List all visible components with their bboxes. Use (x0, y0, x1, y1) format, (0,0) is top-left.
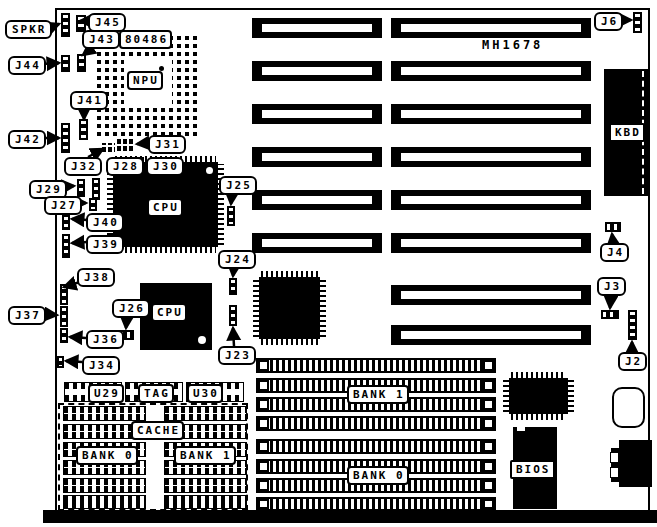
connector-notch (610, 467, 619, 478)
jumper-j2 (628, 310, 637, 340)
isa-slot-segment (391, 61, 591, 81)
callout-j30: J30 (146, 157, 184, 176)
cache-chip (63, 495, 146, 509)
cache-label: CACHE (131, 421, 184, 440)
isa-slot-segment (252, 147, 382, 167)
jumper-j37 (60, 306, 68, 327)
callout-j42: J42 (8, 130, 46, 149)
board-model-text: MH1678 (482, 38, 543, 52)
cache-bank1-label: BANK 1 (174, 446, 236, 465)
bios-label: BIOS (510, 460, 555, 479)
u29-label: U29 (88, 384, 124, 403)
callout-j27: J27 (44, 196, 82, 215)
jumper-j36 (60, 328, 68, 343)
jumper-j4 (605, 222, 621, 232)
callout-j44: J44 (8, 56, 46, 75)
isa-slot-segment (391, 325, 591, 345)
simm-socket (256, 497, 496, 511)
callout-j6: J6 (594, 12, 623, 31)
callout-j25: J25 (219, 176, 257, 195)
npu-label: NPU (127, 71, 163, 90)
chipset-qfp (259, 277, 320, 339)
memory-bank1-label: BANK 1 (347, 385, 409, 404)
memory-bank0-label: BANK 0 (347, 466, 409, 485)
jumper-j43 (77, 54, 86, 72)
cache-chip (164, 478, 247, 493)
pin1-dot (198, 336, 206, 344)
battery-outline (612, 387, 645, 428)
isa-slot-segment (252, 190, 382, 210)
isa-slot-segment (391, 18, 591, 38)
cache-chip (63, 406, 146, 421)
callout-j32: J32 (64, 157, 102, 176)
isa-slot-segment (391, 190, 591, 210)
power-connector (619, 440, 652, 487)
callout-j38: J38 (77, 268, 115, 287)
jumper-j34 (57, 356, 64, 368)
callout-j40: J40 (86, 213, 124, 232)
cpu-top-label: CPU (147, 198, 183, 217)
callout-j34: J34 (82, 356, 120, 375)
callout-j41: J41 (70, 91, 108, 110)
callout-j4: J4 (600, 243, 629, 262)
simm-socket (256, 358, 496, 373)
board-bottom-edge (43, 510, 657, 523)
cache-bank0-label: BANK 0 (76, 446, 138, 465)
callout-j39: J39 (86, 235, 124, 254)
callout-j2: J2 (618, 352, 647, 371)
isa-slot-segment (391, 147, 591, 167)
jumper-j42 (61, 123, 70, 153)
jumper-j38 (60, 284, 68, 305)
callout-j24: J24 (218, 250, 256, 269)
simm-socket (256, 416, 496, 431)
isa-slot-segment (252, 104, 382, 124)
cache-chip (164, 495, 247, 509)
isa-slot-segment (252, 18, 382, 38)
jumper-j3 (601, 310, 619, 319)
jumper-j29 (77, 179, 85, 197)
pin1-dot (206, 167, 213, 174)
connector-notch (610, 452, 619, 463)
callout-j23: J23 (218, 346, 256, 365)
cache-chip (63, 478, 146, 493)
cache-chip (164, 406, 247, 421)
isa-slot-segment (391, 104, 591, 124)
callout-j37: J37 (8, 306, 46, 325)
jumper-j44 (61, 55, 70, 72)
jumper-j32 (102, 143, 115, 152)
jumper-j23 (229, 305, 237, 326)
jumper-j25 (227, 206, 235, 226)
jumper-j24 (229, 278, 237, 295)
jumper-j41 (79, 119, 88, 140)
jumper-j28 (92, 178, 100, 200)
motherboard-diagram: MH1678 80486 NPU CPU CPU KBD BIOS BANK 1 (0, 0, 657, 527)
callout-j31: J31 (148, 135, 186, 154)
callout-j26: J26 (112, 299, 150, 318)
tag-label: TAG (138, 384, 174, 403)
u30-label: U30 (187, 384, 223, 403)
jumper-j27 (89, 198, 97, 211)
isa-slot-segment (252, 61, 382, 81)
kbd-label: KBD (609, 123, 645, 142)
socket-80486-label: 80486 (119, 30, 172, 49)
callout-spkr: SPKR (5, 20, 52, 39)
cpu-bottom-label: CPU (151, 303, 187, 322)
callout-j28: J28 (106, 157, 144, 176)
callout-j43: J43 (82, 30, 120, 49)
jumper-j39 (62, 234, 70, 258)
jumper-j45 (76, 15, 86, 32)
callout-j3: J3 (597, 277, 626, 296)
speaker-header (61, 13, 70, 37)
bios-notch (517, 427, 525, 431)
jumper-j6 (633, 12, 642, 33)
simm-socket (256, 439, 496, 454)
isa-slot-segment (391, 285, 591, 305)
callout-j36: J36 (86, 330, 124, 349)
isa-slot-segment (252, 233, 382, 253)
isa-slot-segment (391, 233, 591, 253)
jumper-j31 (117, 137, 135, 151)
chipset-qfp (509, 378, 568, 414)
